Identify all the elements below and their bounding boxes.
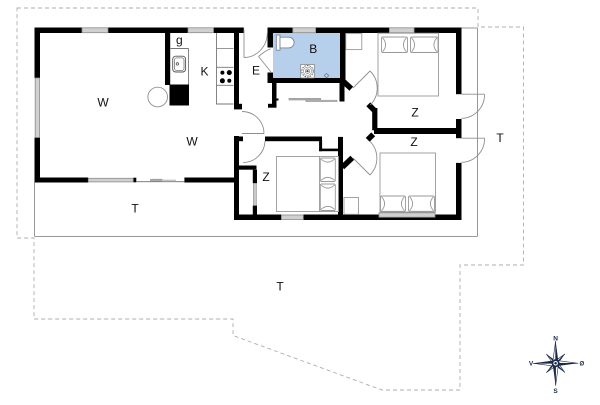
svg-text:S: S [553,388,558,395]
svg-text:Ø: Ø [579,362,584,368]
svg-text:T: T [131,201,139,215]
svg-text:Z: Z [262,170,269,184]
svg-text:E: E [252,63,260,77]
svg-text:Z: Z [411,105,418,119]
svg-text:N: N [553,336,558,343]
svg-text:g: g [176,33,183,47]
svg-text:K: K [200,64,208,78]
svg-text:T: T [276,279,284,293]
svg-text:T: T [496,131,504,145]
svg-text:B: B [309,42,317,56]
svg-text:V: V [529,361,534,368]
svg-text:W: W [97,95,109,109]
svg-text:W: W [186,134,198,148]
svg-text:Z: Z [410,135,417,149]
